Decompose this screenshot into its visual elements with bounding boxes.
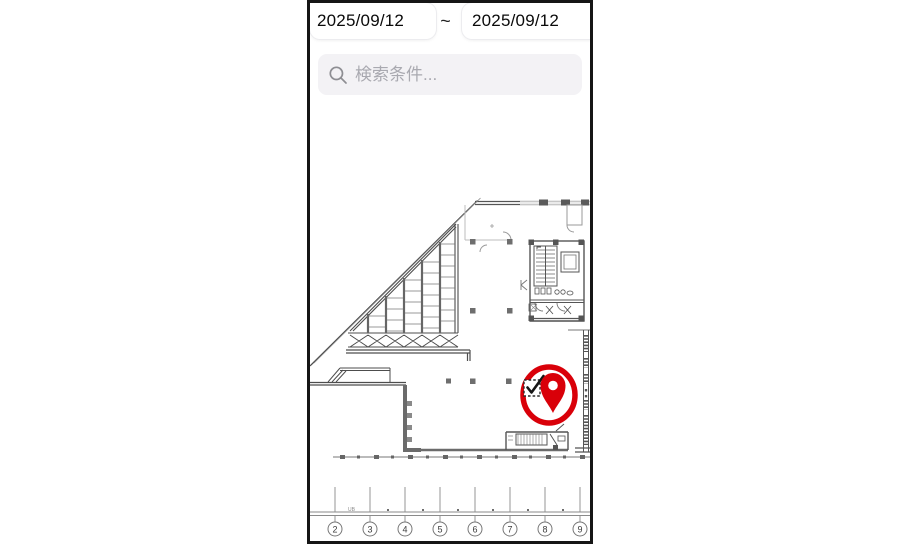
search-bar[interactable]: [318, 54, 582, 95]
map-pin-icon: [541, 373, 566, 413]
grid-label: 4: [402, 525, 407, 535]
search-icon: [328, 65, 348, 85]
date-end-field[interactable]: 2025/09/12: [462, 3, 593, 39]
plan-atrium-skylight: [346, 224, 470, 361]
date-end-value: 2025/09/12: [472, 11, 559, 31]
grid-label: 9: [577, 525, 582, 535]
grid-label: 3: [367, 525, 372, 535]
location-marker[interactable]: [523, 367, 575, 423]
grid-label: 7: [507, 525, 512, 535]
date-start-value: 2025/09/12: [317, 11, 404, 31]
screenshot-canvas: 2025/09/12 ~ 2025/09/12: [0, 0, 900, 544]
plan-grid-dimension: UB 2 3 4 5 6 7 8 9: [310, 487, 590, 536]
grid-label: 2: [332, 525, 337, 535]
plan-escalator: [310, 368, 406, 385]
plan-note-label: UB: [348, 507, 356, 513]
plan-core-block: [521, 240, 590, 331]
grid-label: 5: [437, 525, 442, 535]
search-input[interactable]: [355, 65, 576, 85]
floor-plan[interactable]: UB 2 3 4 5 6 7 8 9: [310, 100, 590, 541]
grid-label: 8: [542, 525, 547, 535]
plan-upper-rooms: [465, 205, 582, 252]
plan-bottom-room: [506, 424, 568, 450]
date-range-bar: 2025/09/12 ~ 2025/09/12: [310, 3, 590, 43]
date-start-field[interactable]: 2025/09/12: [310, 3, 436, 39]
plan-columns: [446, 239, 513, 384]
grid-label: 6: [472, 525, 477, 535]
date-range-separator: ~: [429, 3, 462, 39]
phone-screen: 2025/09/12 ~ 2025/09/12: [307, 0, 593, 544]
plan-bottom-facade: [333, 455, 590, 459]
